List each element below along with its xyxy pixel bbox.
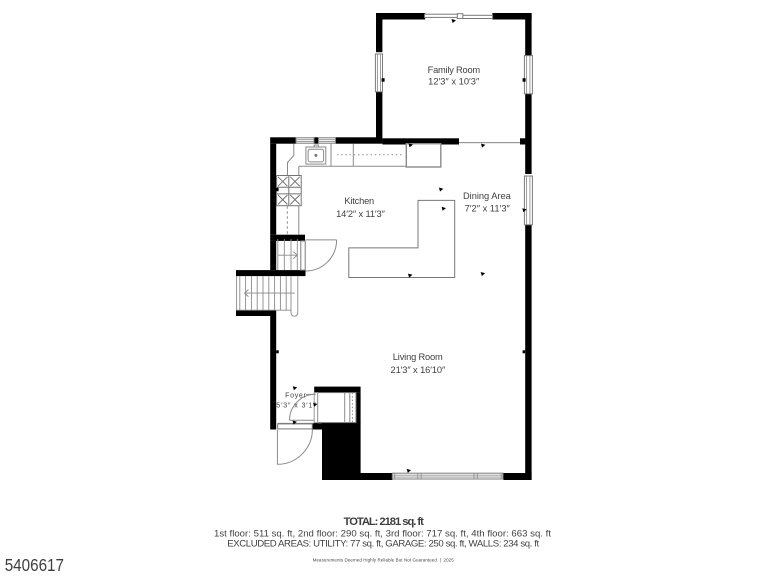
svg-text:14′2″ x 11′3″: 14′2″ x 11′3″ — [336, 209, 386, 219]
svg-text:Measurements Deemed Highly Rel: Measurements Deemed Highly Reliable But … — [313, 557, 455, 562]
svg-text:21′3″ x 16′10″: 21′3″ x 16′10″ — [391, 365, 446, 375]
svg-text:7′2″ x 11′3″: 7′2″ x 11′3″ — [465, 204, 511, 214]
svg-text:Living Room: Living Room — [393, 352, 443, 362]
svg-text:5′3″ x 3′1″: 5′3″ x 3′1″ — [276, 402, 316, 409]
svg-text:TOTAL: 2181 sq. ft: TOTAL: 2181 sq. ft — [344, 516, 424, 528]
svg-text:Foyer: Foyer — [285, 393, 306, 400]
svg-text:12′3″ x 10′3″: 12′3″ x 10′3″ — [428, 77, 480, 87]
svg-text:EXCLUDED AREAS: UTILITY: 77 sq: EXCLUDED AREAS: UTILITY: 77 sq. ft, GARA… — [227, 538, 539, 549]
svg-text:Family Room: Family Room — [428, 65, 481, 75]
svg-text:Dining Area: Dining Area — [463, 191, 512, 201]
svg-text:5406617: 5406617 — [5, 555, 64, 575]
svg-text:Kitchen: Kitchen — [344, 196, 374, 206]
